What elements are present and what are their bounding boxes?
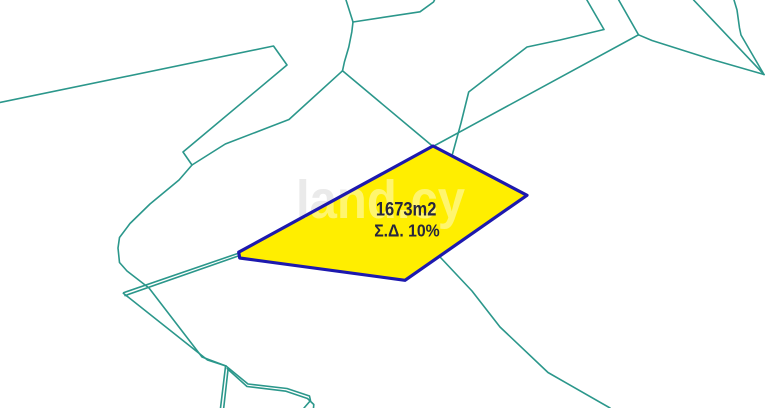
svg-text:1673m2: 1673m2 xyxy=(376,200,437,221)
svg-text:Σ.Δ. 10%: Σ.Δ. 10% xyxy=(374,221,440,241)
